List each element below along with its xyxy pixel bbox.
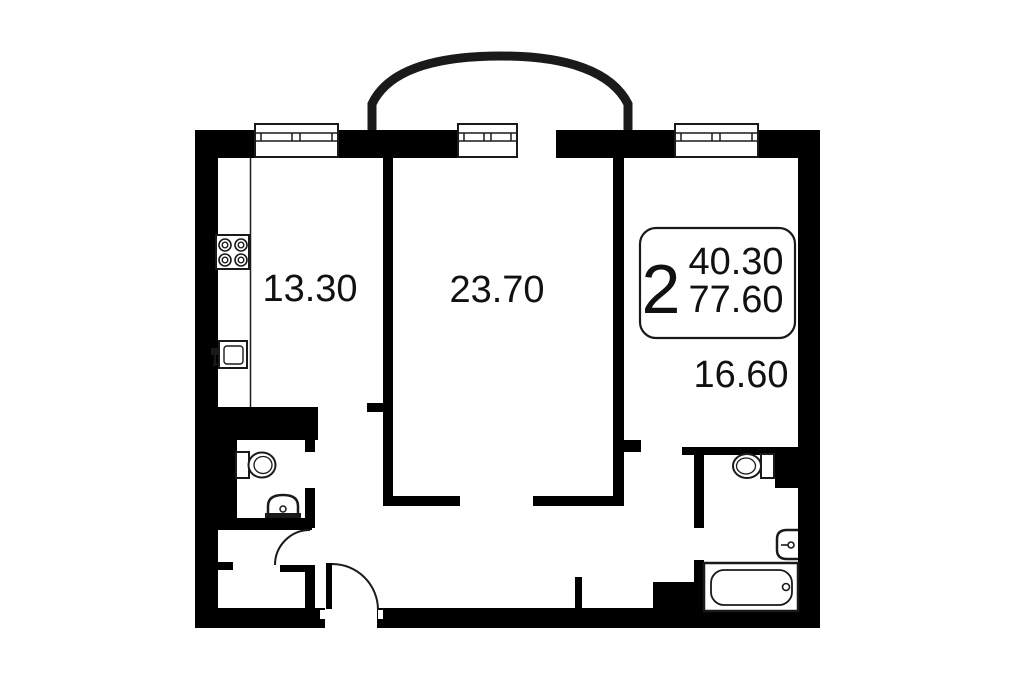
door-leaf-nook — [280, 565, 306, 572]
window-bedroom-icon — [675, 124, 758, 157]
summary-box: 2 40.30 77.60 — [640, 228, 795, 338]
wall-shaft-block — [653, 582, 705, 608]
area-top-label: 40.30 — [688, 241, 783, 283]
wall-stub — [367, 403, 384, 412]
area-bottom-label: 77.60 — [688, 279, 783, 321]
stove-icon — [216, 235, 249, 269]
wall-left-outer — [195, 130, 218, 628]
wc-toilet-icon — [236, 452, 276, 478]
wall-wc-left — [218, 440, 237, 518]
window-kitchen-icon — [255, 124, 338, 157]
windows — [255, 124, 758, 157]
wall-bottom-left — [195, 608, 325, 628]
living-area-label: 23.70 — [449, 269, 544, 311]
wall-hall-left — [305, 565, 315, 608]
wall-kitchen-bottom — [218, 407, 318, 440]
wall-living-bottom-left — [383, 496, 460, 506]
kitchen-area-label: 13.30 — [262, 268, 357, 310]
wall-bathroom-left — [694, 455, 704, 528]
door-leaf-entrance — [326, 563, 332, 609]
wall-wc-right — [305, 488, 315, 528]
wall-shaft-block — [775, 455, 800, 488]
wall-stub — [218, 562, 233, 570]
bath-toilet-icon — [733, 454, 774, 478]
wall-hall-stub — [575, 577, 582, 608]
window-living-icon — [458, 124, 517, 157]
wall-living-bottom-right — [533, 496, 624, 506]
wall-kitchen-divider — [383, 158, 393, 506]
bathtub-icon — [704, 563, 798, 611]
floor-plan-svg: 13.30 23.70 16.60 2 40.30 77.60 — [0, 0, 1024, 682]
room-count-label: 2 — [642, 250, 681, 328]
wall-wc-right — [305, 440, 315, 452]
wall-segment — [556, 130, 675, 158]
door-jamb-notch — [320, 610, 325, 619]
wall-wc-bottom — [218, 518, 312, 530]
background — [0, 0, 1024, 682]
door-jamb-notch — [378, 610, 383, 619]
faucet-icon — [211, 348, 220, 355]
wall-bedroom-bottom — [682, 447, 800, 455]
wall-segment — [338, 130, 458, 158]
bedroom-area-label: 16.60 — [693, 354, 788, 396]
floor-plan-page: 13.30 23.70 16.60 2 40.30 77.60 — [0, 0, 1024, 682]
wall-stub — [624, 440, 641, 452]
wall-bedroom-divider — [613, 158, 624, 506]
wall-right-outer — [798, 130, 820, 628]
